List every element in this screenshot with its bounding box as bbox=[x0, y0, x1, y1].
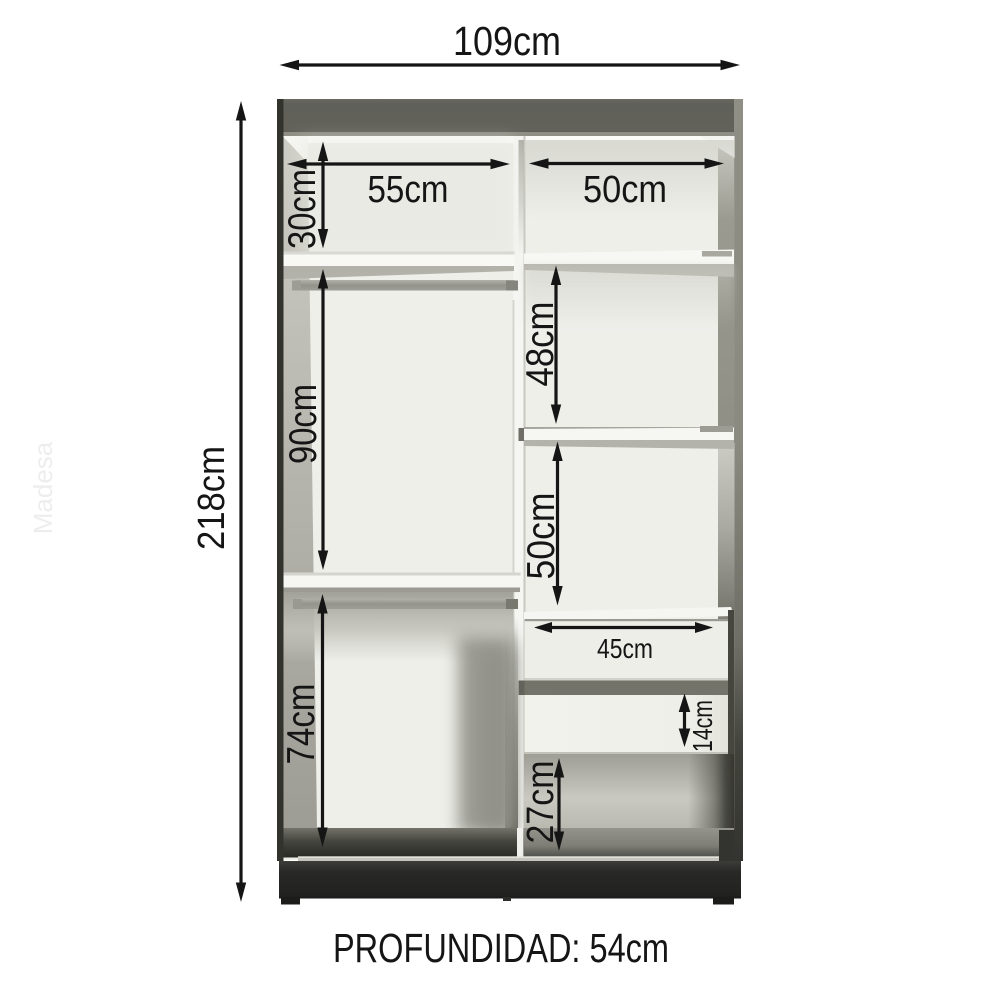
svg-text:Madesa: Madesa bbox=[28, 441, 58, 534]
svg-text:48cm: 48cm bbox=[519, 302, 562, 387]
svg-text:55cm: 55cm bbox=[368, 169, 449, 211]
svg-text:50cm: 50cm bbox=[520, 493, 563, 580]
svg-text:14cm: 14cm bbox=[687, 700, 718, 752]
svg-text:109cm: 109cm bbox=[453, 18, 561, 64]
svg-text:30cm: 30cm bbox=[281, 169, 324, 249]
svg-text:90cm: 90cm bbox=[282, 384, 325, 464]
svg-text:74cm: 74cm bbox=[280, 684, 323, 765]
svg-text:218cm: 218cm bbox=[191, 446, 233, 550]
svg-text:50cm: 50cm bbox=[583, 169, 667, 211]
svg-text:45cm: 45cm bbox=[597, 633, 653, 664]
svg-text:27cm: 27cm bbox=[520, 761, 562, 844]
svg-text:PROFUNDIDAD: 54cm: PROFUNDIDAD: 54cm bbox=[333, 925, 669, 971]
